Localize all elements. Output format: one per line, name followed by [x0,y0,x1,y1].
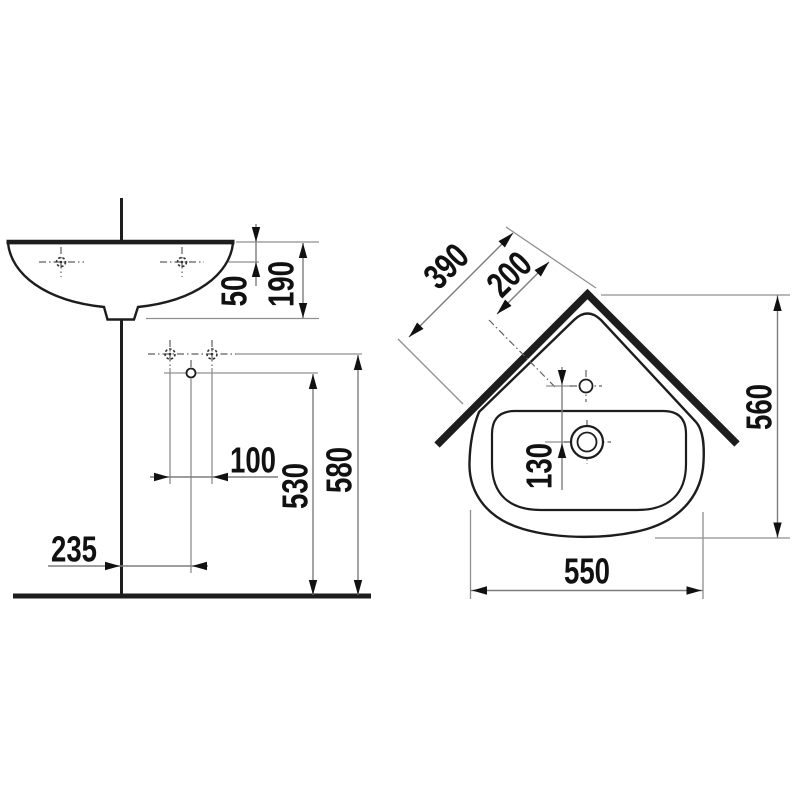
dim-label-50: 50 [214,276,255,307]
dim-drain-height: 530 [275,374,318,595]
dim-depth: 560 [739,295,782,538]
fixing-hole-marker-left [148,340,236,368]
arrowhead [773,296,781,311]
dim-label-560: 560 [739,384,780,430]
dim-fixing-holes-height: 580 [319,355,363,595]
arrowhead [773,523,781,538]
arrowhead [252,262,260,277]
arrowhead [154,473,169,481]
dim-width: 550 [471,551,704,595]
arrowhead [252,227,260,242]
arrowhead [105,562,120,570]
arrowhead [309,580,317,595]
dim-label-190: 190 [261,261,302,307]
dim-corner-to-drain: 235 [48,529,208,571]
dim-label-390: 390 [415,235,477,297]
dim-label-550: 550 [564,551,610,592]
dim-label-530: 530 [275,463,316,509]
drain-hole-marker [187,360,196,378]
dim-label-200: 200 [478,243,540,305]
basin-profile-outline [8,243,233,320]
dim-fixing-hole-spacing: 100 [150,440,278,482]
arrowhead [213,473,228,481]
dim-label-580: 580 [319,447,360,493]
arrowhead [354,580,362,595]
edge-extension-line [398,339,463,404]
front-view: 50 190 100 235 530 [7,198,372,596]
arrowhead [472,586,487,594]
technical-drawing: 50 190 100 235 530 [0,0,800,800]
arrowhead [354,355,362,370]
arrowhead [192,562,207,570]
dim-label-130: 130 [519,443,560,489]
dim-label-235: 235 [51,529,97,570]
arrowhead [299,243,307,258]
arrowhead [309,374,317,389]
drawing-page: 50 190 100 235 530 [0,0,800,800]
top-view: 390 200 130 560 550 [398,227,790,599]
arrowhead [687,586,702,594]
dim-basin-height: 190 [261,243,308,318]
dim-corner-to-tap-hole: 200 [478,243,549,314]
dim-label-100: 100 [230,440,276,481]
